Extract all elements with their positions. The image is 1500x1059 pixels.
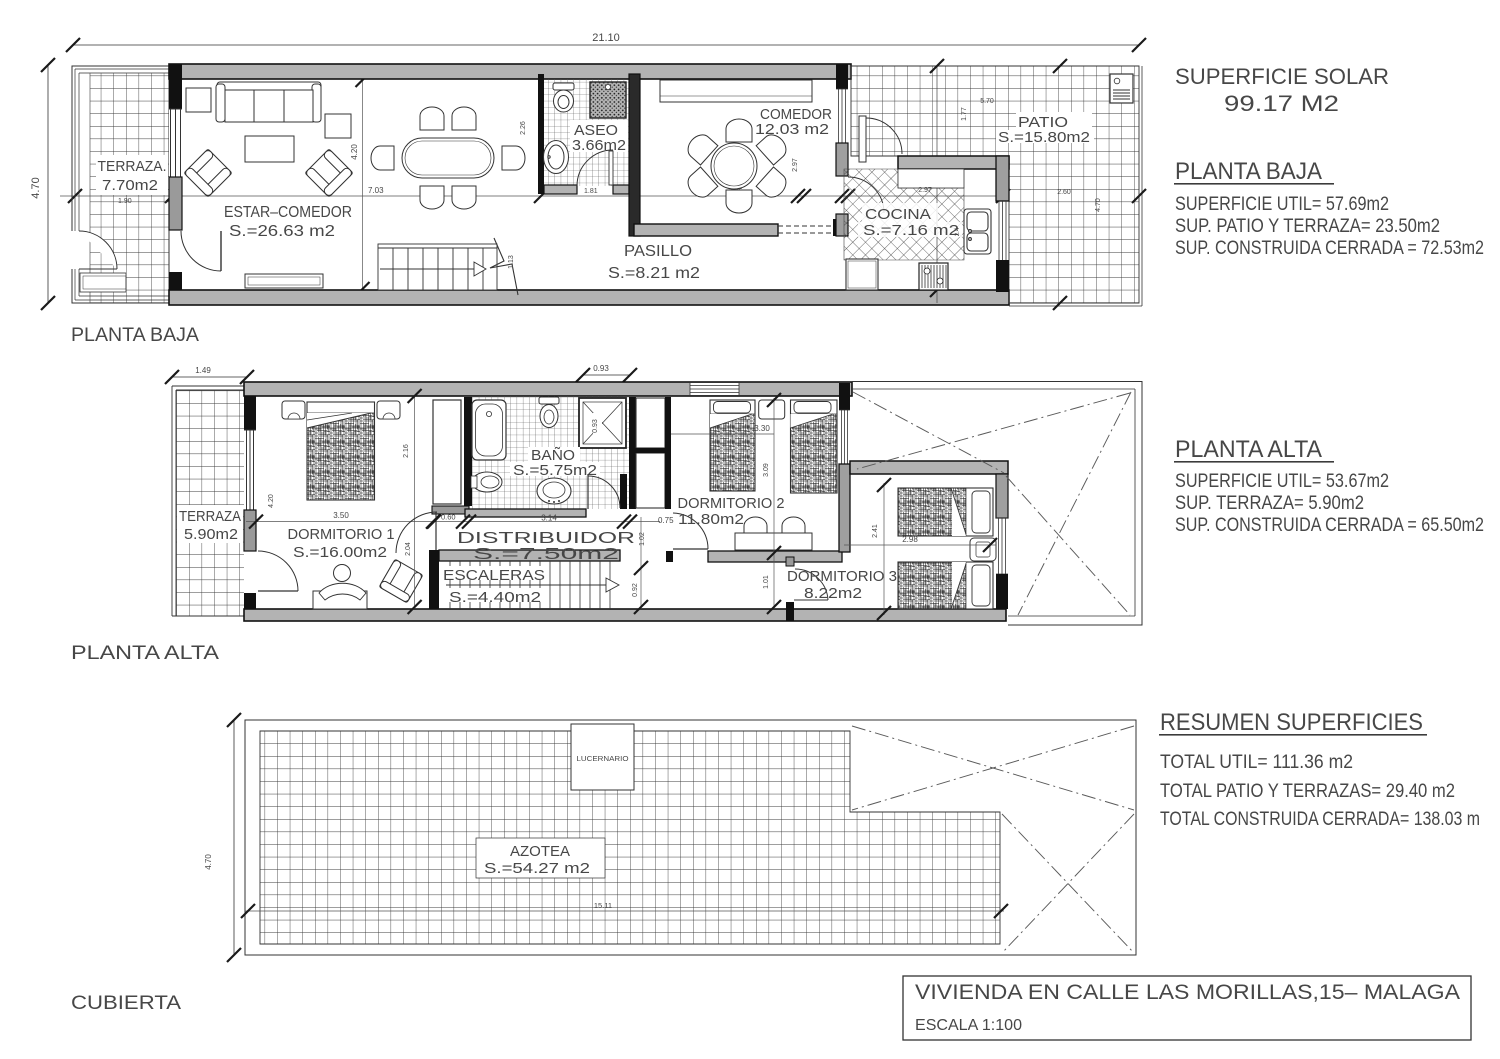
- svg-text:1.77: 1.77: [961, 107, 968, 121]
- svg-text:COCINA: COCINA: [865, 206, 931, 223]
- svg-text:11.80m2: 11.80m2: [678, 511, 744, 528]
- svg-text:PLANTA ALTA: PLANTA ALTA: [1175, 436, 1322, 463]
- svg-text:2.4: 2.4: [955, 227, 961, 236]
- svg-text:5.70: 5.70: [980, 98, 994, 105]
- svg-text:12.03 m2: 12.03 m2: [755, 121, 829, 138]
- svg-text:SUP. CONSTRUIDA CERRADA =: SUP. CONSTRUIDA CERRADA = 65.50m2: [1175, 514, 1484, 536]
- svg-text:2.26: 2.26: [520, 121, 527, 135]
- svg-text:ESCALA 1:100: ESCALA 1:100: [915, 1017, 1022, 1034]
- svg-text:ESTAR–COMEDOR: ESTAR–COMEDOR: [224, 204, 352, 221]
- svg-text:3.30: 3.30: [754, 424, 770, 433]
- svg-text:PASILLO: PASILLO: [624, 243, 692, 260]
- svg-text:S.=5.75m2: S.=5.75m2: [513, 462, 597, 479]
- svg-text:2.60: 2.60: [1057, 189, 1071, 196]
- svg-text:DORMITORIO 3: DORMITORIO 3: [787, 568, 897, 585]
- svg-text:1.13: 1.13: [508, 255, 515, 269]
- svg-text:2.16: 2.16: [403, 444, 410, 458]
- svg-text:4.70: 4.70: [1095, 198, 1102, 212]
- svg-text:99.17 M2: 99.17 M2: [1224, 91, 1339, 116]
- svg-text:S.=7.16 m2: S.=7.16 m2: [863, 222, 959, 239]
- svg-text:SUP. CONSTRUIDA CERRADA =: SUP. CONSTRUIDA CERRADA = 72.53m2: [1175, 237, 1484, 259]
- svg-text:TERRAZA: TERRAZA: [179, 508, 241, 525]
- svg-text:PLANTA BAJA: PLANTA BAJA: [1175, 158, 1322, 185]
- svg-text:7.03: 7.03: [368, 186, 384, 195]
- svg-text:TOTAL CONSTRUIDA CERRADA= 1: TOTAL CONSTRUIDA CERRADA= 138.03 m: [1160, 808, 1480, 830]
- svg-text:7.70m2: 7.70m2: [102, 177, 158, 194]
- svg-text:TOTAL PATIO Y TERRAZAS= 29: TOTAL PATIO Y TERRAZAS= 29.40 m2: [1160, 780, 1455, 802]
- svg-text:S.=26.63 m2: S.=26.63 m2: [229, 223, 335, 240]
- svg-text:SUPERFICIE UTIL= 53.67m2: SUPERFICIE UTIL= 53.67m2: [1175, 470, 1389, 492]
- svg-text:4.70: 4.70: [204, 854, 213, 870]
- svg-text:DORMITORIO 2: DORMITORIO 2: [678, 495, 785, 512]
- svg-text:PLANTA ALTA: PLANTA ALTA: [71, 643, 219, 664]
- svg-text:SUPERFICIE SOLAR: SUPERFICIE SOLAR: [1175, 64, 1389, 89]
- svg-text:1.81: 1.81: [584, 188, 598, 195]
- svg-text:AZOTEA: AZOTEA: [510, 843, 570, 860]
- svg-text:21.10: 21.10: [592, 32, 620, 44]
- svg-text:S.=15.80m2: S.=15.80m2: [998, 129, 1090, 146]
- svg-text:S.=54.27 m2: S.=54.27 m2: [484, 860, 590, 877]
- svg-text:0.93: 0.93: [593, 364, 609, 373]
- svg-text:8.22m2: 8.22m2: [804, 585, 862, 602]
- svg-text:5.90m2: 5.90m2: [184, 526, 238, 543]
- svg-text:3.66m2: 3.66m2: [572, 137, 626, 154]
- svg-text:ESCALERAS: ESCALERAS: [443, 567, 545, 584]
- svg-text:2.98: 2.98: [902, 535, 918, 544]
- svg-text:TOTAL UTIL= 111.36 m2: TOTAL UTIL= 111.36 m2: [1160, 751, 1353, 773]
- svg-text:2.41: 2.41: [872, 524, 879, 538]
- svg-text:VIVIENDA EN CALLE LAS MORI: VIVIENDA EN CALLE LAS MORILLAS,15– MALAG…: [915, 981, 1460, 1004]
- svg-text:3.14: 3.14: [541, 514, 557, 523]
- svg-text:1.02: 1.02: [639, 532, 646, 546]
- svg-text:CUBIERTA: CUBIERTA: [71, 993, 181, 1014]
- svg-text:2.97: 2.97: [792, 158, 799, 172]
- svg-text:TERRAZA.: TERRAZA.: [98, 158, 167, 175]
- svg-text:SUP. PATIO Y TERRAZA= 23.5: SUP. PATIO Y TERRAZA= 23.50m2: [1175, 215, 1440, 237]
- svg-text:0.92: 0.92: [632, 583, 639, 597]
- svg-text:PLANTA BAJA: PLANTA BAJA: [71, 325, 199, 346]
- svg-text:LUCERNARIO: LUCERNARIO: [577, 754, 629, 763]
- svg-text:0.93: 0.93: [592, 419, 599, 433]
- svg-text:1.01: 1.01: [763, 575, 770, 589]
- svg-text:3.09: 3.09: [763, 463, 770, 477]
- svg-text:S.=8.21 m2: S.=8.21 m2: [608, 265, 700, 282]
- svg-text:SUPERFICIE UTIL= 57.69m2: SUPERFICIE UTIL= 57.69m2: [1175, 193, 1389, 215]
- svg-text:4.20: 4.20: [350, 144, 359, 160]
- svg-text:3.50: 3.50: [333, 511, 349, 520]
- svg-text:15.11: 15.11: [594, 901, 612, 910]
- svg-text:4.20: 4.20: [268, 494, 275, 508]
- svg-text:RESUMEN SUPERFICIES: RESUMEN SUPERFICIES: [1160, 709, 1423, 736]
- svg-text:S.=16.00m2: S.=16.00m2: [293, 544, 387, 561]
- svg-text:DISTRIBUIDOR: DISTRIBUIDOR: [457, 530, 635, 547]
- svg-text:2.04: 2.04: [405, 542, 412, 556]
- svg-text:2.97: 2.97: [918, 187, 932, 194]
- svg-text:S.=7.50m2: S.=7.50m2: [473, 546, 619, 563]
- svg-text:1.49: 1.49: [195, 366, 211, 375]
- svg-text:4.70: 4.70: [30, 177, 42, 198]
- svg-text:DORMITORIO 1: DORMITORIO 1: [288, 526, 395, 543]
- svg-text:0.75: 0.75: [658, 516, 674, 525]
- svg-text:S.=4.40m2: S.=4.40m2: [449, 589, 541, 606]
- svg-text:SUP. TERRAZA= 5.90m2: SUP. TERRAZA= 5.90m2: [1175, 492, 1364, 514]
